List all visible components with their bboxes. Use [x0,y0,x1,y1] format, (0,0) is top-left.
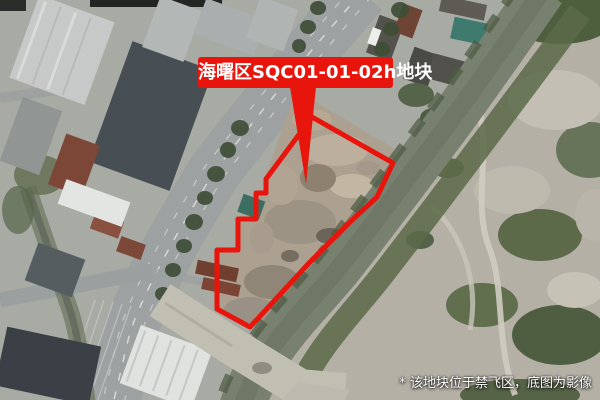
map-footnote: * 该地块位于禁飞区，底图为影像 [399,372,592,391]
parcel-label: 海曙区SQC01-01-02h地块 [198,57,393,88]
satellite-map-image: 海曙区SQC01-01-02h地块 * 该地块位于禁飞区，底图为影像 [0,0,600,400]
